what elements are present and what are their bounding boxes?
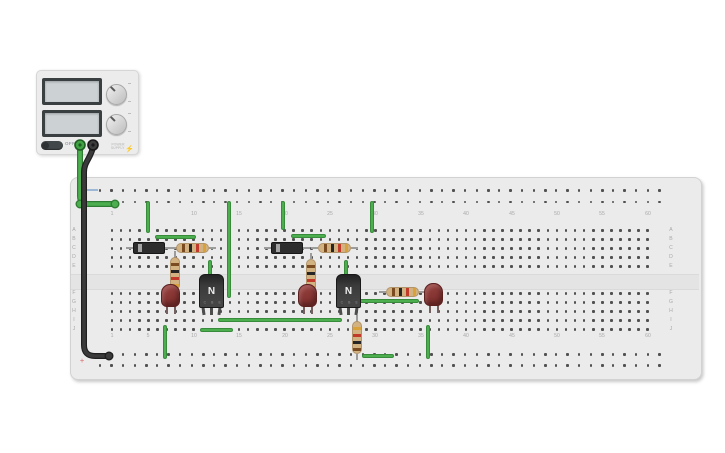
breadboard-hole[interactable] (259, 201, 262, 204)
breadboard-hole[interactable] (365, 292, 368, 295)
breadboard-hole[interactable] (365, 229, 368, 232)
breadboard-hole[interactable] (619, 310, 622, 313)
led-2[interactable] (298, 284, 317, 307)
breadboard-hole[interactable] (192, 256, 195, 259)
resistor-3[interactable] (318, 243, 351, 253)
breadboard-hole[interactable] (248, 353, 251, 356)
breadboard-hole[interactable] (628, 301, 631, 304)
breadboard-hole[interactable] (510, 328, 513, 331)
breadboard-hole[interactable] (498, 353, 501, 356)
breadboard-hole[interactable] (283, 301, 286, 304)
breadboard-hole[interactable] (401, 319, 404, 322)
breadboard-hole[interactable] (147, 292, 150, 295)
breadboard-hole[interactable] (224, 364, 227, 367)
breadboard-hole[interactable] (519, 310, 522, 313)
breadboard-hole[interactable] (192, 301, 195, 304)
breadboard-hole[interactable] (301, 265, 304, 268)
breadboard-hole[interactable] (274, 265, 277, 268)
breadboard-hole[interactable] (566, 353, 569, 356)
breadboard-hole[interactable] (213, 364, 216, 367)
breadboard-hole[interactable] (492, 319, 495, 322)
breadboard-hole[interactable] (192, 310, 195, 313)
breadboard-hole[interactable] (623, 364, 626, 367)
breadboard-hole[interactable] (623, 353, 626, 356)
breadboard-hole[interactable] (274, 238, 277, 241)
breadboard-hole[interactable] (362, 189, 365, 192)
breadboard-hole[interactable] (483, 310, 486, 313)
breadboard-hole[interactable] (592, 256, 595, 259)
breadboard-hole[interactable] (138, 229, 141, 232)
breadboard-hole[interactable] (612, 189, 615, 192)
breadboard-hole[interactable] (547, 292, 550, 295)
breadboard-hole[interactable] (556, 265, 559, 268)
breadboard-hole[interactable] (174, 328, 177, 331)
breadboard-hole[interactable] (329, 310, 332, 313)
breadboard-hole[interactable] (556, 238, 559, 241)
breadboard-hole[interactable] (165, 319, 168, 322)
breadboard-hole[interactable] (519, 238, 522, 241)
breadboard-hole[interactable] (430, 364, 433, 367)
breadboard-hole[interactable] (492, 292, 495, 295)
breadboard-hole[interactable] (510, 229, 513, 232)
breadboard-hole[interactable] (637, 328, 640, 331)
breadboard-hole[interactable] (316, 189, 319, 192)
breadboard-hole[interactable] (320, 301, 323, 304)
breadboard-hole[interactable] (274, 301, 277, 304)
breadboard-hole[interactable] (592, 238, 595, 241)
breadboard-hole[interactable] (329, 292, 332, 295)
breadboard-hole[interactable] (191, 364, 194, 367)
breadboard-hole[interactable] (220, 256, 223, 259)
breadboard-hole[interactable] (501, 256, 504, 259)
breadboard-hole[interactable] (501, 229, 504, 232)
breadboard-hole[interactable] (374, 256, 377, 259)
breadboard-hole[interactable] (374, 238, 377, 241)
breadboard-hole[interactable] (383, 256, 386, 259)
breadboard-hole[interactable] (365, 256, 368, 259)
breadboard-hole[interactable] (483, 328, 486, 331)
breadboard-hole[interactable] (590, 189, 593, 192)
breadboard-hole[interactable] (183, 256, 186, 259)
breadboard-hole[interactable] (566, 364, 569, 367)
breadboard-hole[interactable] (430, 189, 433, 192)
breadboard-hole[interactable] (338, 189, 341, 192)
breadboard-hole[interactable] (537, 310, 540, 313)
breadboard-hole[interactable] (555, 353, 558, 356)
breadboard-hole[interactable] (410, 256, 413, 259)
breadboard-hole[interactable] (256, 301, 259, 304)
breadboard-hole[interactable] (165, 256, 168, 259)
breadboard-hole[interactable] (556, 292, 559, 295)
breadboard-hole[interactable] (305, 189, 308, 192)
breadboard-hole[interactable] (501, 319, 504, 322)
breadboard-hole[interactable] (556, 319, 559, 322)
breadboard-hole[interactable] (628, 292, 631, 295)
breadboard-hole[interactable] (438, 229, 441, 232)
breadboard-hole[interactable] (658, 189, 661, 192)
breadboard-hole[interactable] (145, 364, 148, 367)
breadboard-hole[interactable] (438, 238, 441, 241)
breadboard-hole[interactable] (111, 301, 114, 304)
breadboard-hole[interactable] (419, 265, 422, 268)
breadboard-hole[interactable] (147, 310, 150, 313)
breadboard-hole[interactable] (410, 238, 413, 241)
breadboard-hole[interactable] (429, 319, 432, 322)
breadboard-hole[interactable] (533, 189, 536, 192)
breadboard-hole[interactable] (555, 364, 558, 367)
breadboard-hole[interactable] (637, 292, 640, 295)
breadboard-hole[interactable] (519, 328, 522, 331)
breadboard-hole[interactable] (147, 319, 150, 322)
breadboard-hole[interactable] (392, 265, 395, 268)
breadboard-hole[interactable] (619, 238, 622, 241)
breadboard-hole[interactable] (283, 238, 286, 241)
breadboard-hole[interactable] (610, 310, 613, 313)
breadboard-hole[interactable] (383, 328, 386, 331)
breadboard-hole[interactable] (365, 265, 368, 268)
breadboard-hole[interactable] (419, 189, 422, 192)
breadboard-hole[interactable] (623, 189, 626, 192)
breadboard-hole[interactable] (492, 256, 495, 259)
breadboard-hole[interactable] (327, 364, 330, 367)
breadboard-hole[interactable] (220, 229, 223, 232)
breadboard-hole[interactable] (547, 238, 550, 241)
breadboard-hole[interactable] (528, 229, 531, 232)
breadboard-hole[interactable] (447, 292, 450, 295)
breadboard-hole[interactable] (183, 229, 186, 232)
breadboard-hole[interactable] (601, 319, 604, 322)
breadboard-hole[interactable] (256, 238, 259, 241)
breadboard-hole[interactable] (510, 301, 513, 304)
breadboard-hole[interactable] (556, 256, 559, 259)
breadboard-hole[interactable] (537, 319, 540, 322)
resistor-6[interactable] (386, 287, 419, 297)
breadboard-hole[interactable] (220, 247, 223, 250)
breadboard-hole[interactable] (392, 256, 395, 259)
breadboard-hole[interactable] (138, 238, 141, 241)
breadboard-hole[interactable] (429, 238, 432, 241)
breadboard-hole[interactable] (610, 265, 613, 268)
breadboard-hole[interactable] (438, 265, 441, 268)
breadboard-hole[interactable] (365, 319, 368, 322)
breadboard-hole[interactable] (447, 229, 450, 232)
breadboard-hole[interactable] (601, 247, 604, 250)
breadboard-hole[interactable] (646, 247, 649, 250)
wire-row-b-stage2[interactable] (291, 234, 327, 239)
breadboard-hole[interactable] (438, 319, 441, 322)
breadboard-hole[interactable] (256, 247, 259, 250)
breadboard-hole[interactable] (610, 301, 613, 304)
breadboard-hole[interactable] (441, 353, 444, 356)
breadboard-hole[interactable] (156, 292, 159, 295)
breadboard-hole[interactable] (556, 310, 559, 313)
breadboard-hole[interactable] (220, 265, 223, 268)
breadboard-hole[interactable] (259, 353, 262, 356)
breadboard-hole[interactable] (628, 238, 631, 241)
breadboard-hole[interactable] (213, 189, 216, 192)
breadboard-hole[interactable] (316, 353, 319, 356)
breadboard-hole[interactable] (637, 238, 640, 241)
breadboard-hole[interactable] (156, 319, 159, 322)
breadboard-hole[interactable] (256, 328, 259, 331)
breadboard-hole[interactable] (395, 353, 398, 356)
breadboard-hole[interactable] (410, 265, 413, 268)
breadboard-hole[interactable] (492, 310, 495, 313)
breadboard-hole[interactable] (283, 292, 286, 295)
breadboard-hole[interactable] (601, 238, 604, 241)
breadboard-hole[interactable] (637, 319, 640, 322)
breadboard-hole[interactable] (447, 328, 450, 331)
breadboard-hole[interactable] (167, 353, 170, 356)
breadboard-hole[interactable] (547, 256, 550, 259)
transistor-2[interactable]: NC B E (336, 274, 361, 308)
breadboard-hole[interactable] (447, 247, 450, 250)
breadboard-hole[interactable] (383, 265, 386, 268)
breadboard-hole[interactable] (145, 353, 148, 356)
breadboard-hole[interactable] (111, 229, 114, 232)
breadboard-hole[interactable] (447, 319, 450, 322)
breadboard-hole[interactable] (292, 301, 295, 304)
breadboard-hole[interactable] (519, 319, 522, 322)
wire-col36-ground[interactable] (426, 325, 431, 360)
breadboard-hole[interactable] (134, 353, 137, 356)
breadboard-hole[interactable] (138, 256, 141, 259)
breadboard-hole[interactable] (590, 364, 593, 367)
breadboard-hole[interactable] (601, 328, 604, 331)
breadboard-hole[interactable] (283, 265, 286, 268)
breadboard-hole[interactable] (165, 265, 168, 268)
breadboard-hole[interactable] (265, 229, 268, 232)
breadboard-hole[interactable] (547, 229, 550, 232)
breadboard-hole[interactable] (441, 189, 444, 192)
breadboard-hole[interactable] (492, 229, 495, 232)
breadboard-hole[interactable] (373, 189, 376, 192)
breadboard-hole[interactable] (509, 364, 512, 367)
breadboard-hole[interactable] (156, 328, 159, 331)
breadboard-hole[interactable] (419, 328, 422, 331)
breadboard-hole[interactable] (156, 364, 159, 367)
breadboard-hole[interactable] (156, 189, 159, 192)
breadboard-hole[interactable] (658, 364, 661, 367)
breadboard-hole[interactable] (401, 229, 404, 232)
breadboard-hole[interactable] (610, 292, 613, 295)
breadboard-hole[interactable] (110, 353, 113, 356)
breadboard-hole[interactable] (248, 189, 251, 192)
wire-row-j[interactable] (200, 328, 234, 333)
breadboard-hole[interactable] (156, 265, 159, 268)
breadboard-hole[interactable] (441, 364, 444, 367)
breadboard-hole[interactable] (619, 265, 622, 268)
transistor-1[interactable]: NC B E (199, 274, 224, 308)
breadboard-hole[interactable] (320, 238, 323, 241)
breadboard-hole[interactable] (310, 229, 313, 232)
breadboard-hole[interactable] (305, 364, 308, 367)
breadboard-hole[interactable] (528, 292, 531, 295)
breadboard-hole[interactable] (501, 328, 504, 331)
breadboard-hole[interactable] (601, 301, 604, 304)
breadboard-hole[interactable] (501, 247, 504, 250)
breadboard-hole[interactable] (191, 353, 194, 356)
breadboard-hole[interactable] (619, 247, 622, 250)
breadboard-hole[interactable] (392, 328, 395, 331)
breadboard-hole[interactable] (483, 247, 486, 250)
breadboard-hole[interactable] (519, 265, 522, 268)
breadboard-hole[interactable] (419, 256, 422, 259)
breadboard-hole[interactable] (202, 364, 205, 367)
breadboard-hole[interactable] (537, 256, 540, 259)
breadboard-hole[interactable] (383, 310, 386, 313)
breadboard-hole[interactable] (138, 301, 141, 304)
breadboard-hole[interactable] (167, 364, 170, 367)
breadboard-hole[interactable] (395, 189, 398, 192)
breadboard-hole[interactable] (270, 364, 273, 367)
breadboard-hole[interactable] (174, 229, 177, 232)
breadboard-hole[interactable] (619, 229, 622, 232)
breadboard-hole[interactable] (519, 247, 522, 250)
breadboard-hole[interactable] (99, 189, 102, 192)
breadboard-hole[interactable] (145, 189, 148, 192)
breadboard-hole[interactable] (202, 319, 205, 322)
wire-plusrail-f14[interactable] (227, 201, 232, 299)
breadboard-hole[interactable] (601, 292, 604, 295)
breadboard-hole[interactable] (556, 301, 559, 304)
breadboard-hole[interactable] (447, 301, 450, 304)
breadboard-hole[interactable] (637, 310, 640, 313)
breadboard-hole[interactable] (301, 229, 304, 232)
breadboard-hole[interactable] (281, 364, 284, 367)
breadboard-hole[interactable] (447, 238, 450, 241)
breadboard-hole[interactable] (111, 292, 114, 295)
breadboard-hole[interactable] (610, 319, 613, 322)
breadboard-hole[interactable] (429, 247, 432, 250)
breadboard-hole[interactable] (292, 310, 295, 313)
breadboard-hole[interactable] (401, 310, 404, 313)
breadboard-hole[interactable] (292, 238, 295, 241)
breadboard-hole[interactable] (619, 301, 622, 304)
breadboard-hole[interactable] (610, 229, 613, 232)
breadboard-hole[interactable] (147, 256, 150, 259)
breadboard-hole[interactable] (519, 256, 522, 259)
breadboard-hole[interactable] (419, 310, 422, 313)
breadboard-hole[interactable] (111, 310, 114, 313)
psu-power-toggle[interactable] (41, 141, 63, 150)
breadboard-hole[interactable] (419, 364, 422, 367)
breadboard-hole[interactable] (401, 238, 404, 241)
breadboard-hole[interactable] (329, 265, 332, 268)
breadboard-hole[interactable] (547, 247, 550, 250)
breadboard-hole[interactable] (134, 189, 137, 192)
breadboard-hole[interactable] (338, 256, 341, 259)
breadboard-hole[interactable] (544, 353, 547, 356)
breadboard-hole[interactable] (452, 364, 455, 367)
breadboard-hole[interactable] (528, 265, 531, 268)
breadboard-hole[interactable] (138, 328, 141, 331)
breadboard-hole[interactable] (138, 310, 141, 313)
breadboard-hole[interactable] (401, 265, 404, 268)
breadboard-hole[interactable] (320, 256, 323, 259)
breadboard-hole[interactable] (556, 247, 559, 250)
breadboard-hole[interactable] (565, 247, 568, 250)
breadboard-hole[interactable] (565, 292, 568, 295)
breadboard-hole[interactable] (565, 319, 568, 322)
breadboard-hole[interactable] (305, 353, 308, 356)
breadboard-hole[interactable] (556, 229, 559, 232)
wire-plusrail-a29[interactable] (370, 201, 375, 234)
breadboard-hole[interactable] (147, 301, 150, 304)
breadboard-hole[interactable] (658, 353, 661, 356)
breadboard-hole[interactable] (430, 201, 433, 204)
breadboard-hole[interactable] (483, 301, 486, 304)
breadboard-hole[interactable] (501, 292, 504, 295)
breadboard-hole[interactable] (438, 247, 441, 250)
breadboard-hole[interactable] (410, 310, 413, 313)
breadboard-hole[interactable] (419, 229, 422, 232)
breadboard-hole[interactable] (637, 301, 640, 304)
breadboard-hole[interactable] (658, 201, 661, 204)
breadboard-hole[interactable] (174, 319, 177, 322)
breadboard-hole[interactable] (447, 256, 450, 259)
breadboard-hole[interactable] (537, 301, 540, 304)
breadboard-hole[interactable] (610, 328, 613, 331)
breadboard-hole[interactable] (220, 238, 223, 241)
breadboard-hole[interactable] (419, 319, 422, 322)
breadboard-hole[interactable] (492, 238, 495, 241)
breadboard-hole[interactable] (259, 364, 262, 367)
breadboard-hole[interactable] (329, 328, 332, 331)
breadboard-hole[interactable] (213, 353, 216, 356)
breadboard-hole[interactable] (310, 238, 313, 241)
diode-2[interactable] (271, 242, 303, 254)
breadboard-hole[interactable] (338, 238, 341, 241)
breadboard-hole[interactable] (566, 189, 569, 192)
breadboard-hole[interactable] (419, 238, 422, 241)
breadboard-hole[interactable] (419, 247, 422, 250)
breadboard-hole[interactable] (283, 256, 286, 259)
breadboard-hole[interactable] (476, 189, 479, 192)
breadboard-hole[interactable] (410, 328, 413, 331)
breadboard-hole[interactable] (528, 310, 531, 313)
breadboard-hole[interactable] (265, 238, 268, 241)
breadboard-hole[interactable] (111, 328, 114, 331)
breadboard-hole[interactable] (373, 364, 376, 367)
breadboard-hole[interactable] (301, 256, 304, 259)
breadboard-hole[interactable] (256, 229, 259, 232)
breadboard-hole[interactable] (510, 256, 513, 259)
breadboard-hole[interactable] (592, 328, 595, 331)
breadboard-hole[interactable] (256, 310, 259, 313)
breadboard-hole[interactable] (509, 353, 512, 356)
breadboard-hole[interactable] (528, 238, 531, 241)
breadboard-hole[interactable] (646, 265, 649, 268)
breadboard-hole[interactable] (592, 292, 595, 295)
breadboard-hole[interactable] (192, 229, 195, 232)
breadboard-hole[interactable] (292, 328, 295, 331)
breadboard-hole[interactable] (374, 310, 377, 313)
breadboard-hole[interactable] (138, 265, 141, 268)
breadboard-hole[interactable] (202, 256, 205, 259)
breadboard-hole[interactable] (637, 229, 640, 232)
breadboard-hole[interactable] (646, 319, 649, 322)
breadboard-hole[interactable] (110, 364, 113, 367)
breadboard-hole[interactable] (601, 229, 604, 232)
breadboard-hole[interactable] (547, 301, 550, 304)
breadboard-hole[interactable] (274, 229, 277, 232)
breadboard-hole[interactable] (365, 310, 368, 313)
breadboard-hole[interactable] (224, 189, 227, 192)
breadboard-hole[interactable] (619, 292, 622, 295)
breadboard-hole[interactable] (476, 353, 479, 356)
breadboard-hole[interactable] (274, 292, 277, 295)
